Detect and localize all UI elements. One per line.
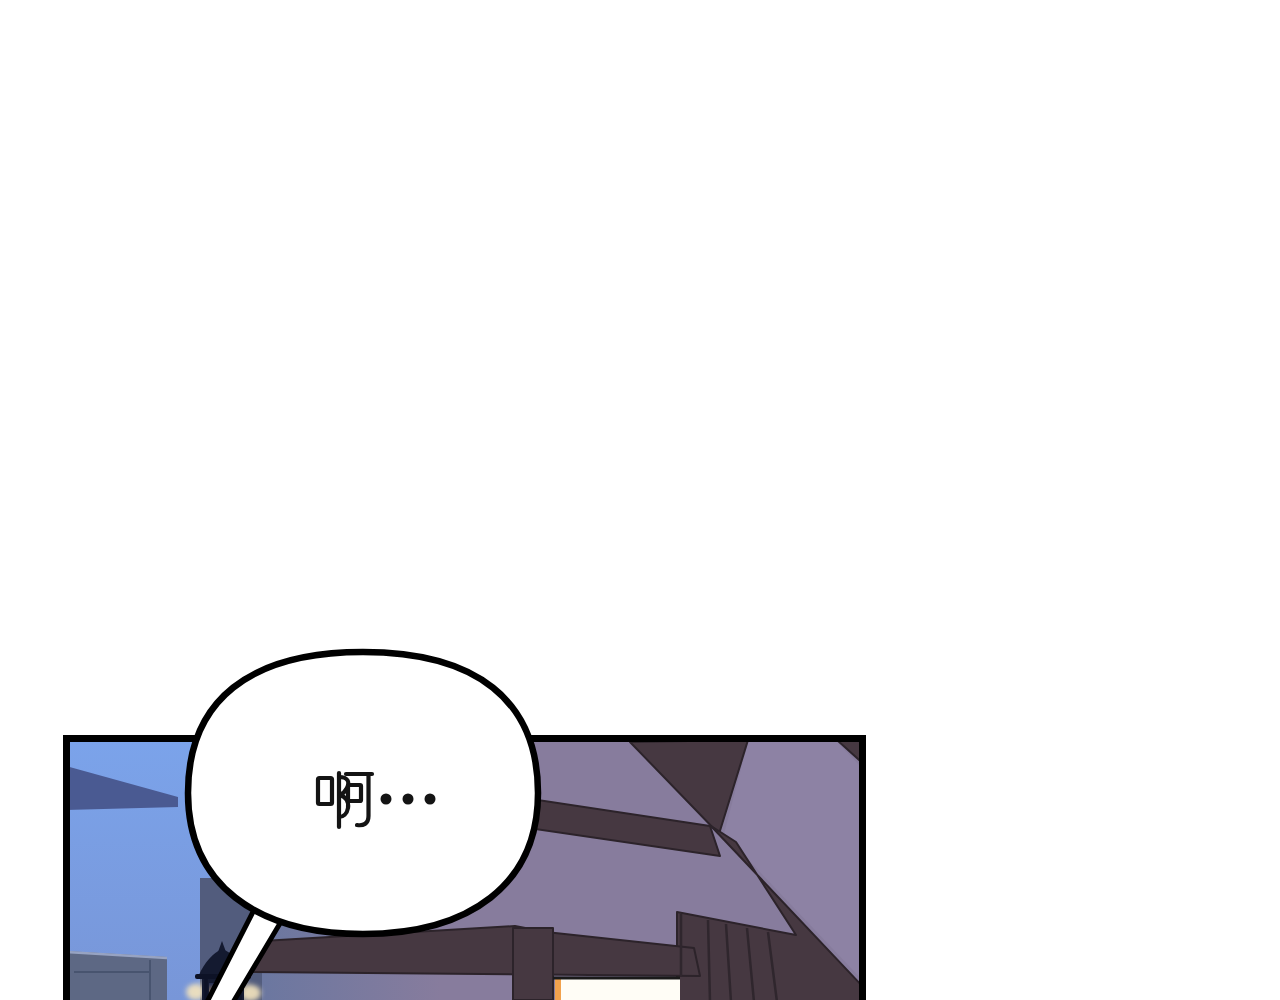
wall-post xyxy=(513,928,553,1000)
lit-doorway xyxy=(553,978,680,1000)
wooden-shutter-door xyxy=(66,951,167,1000)
comic-panel xyxy=(0,0,1280,1000)
page-canvas: 啊··· xyxy=(0,0,1280,1000)
doorway-light xyxy=(561,978,680,1000)
dialogue-ellipsis-dots xyxy=(381,794,436,805)
lamp-glow-left xyxy=(186,984,204,1000)
doorway-light-edge xyxy=(555,978,561,1000)
